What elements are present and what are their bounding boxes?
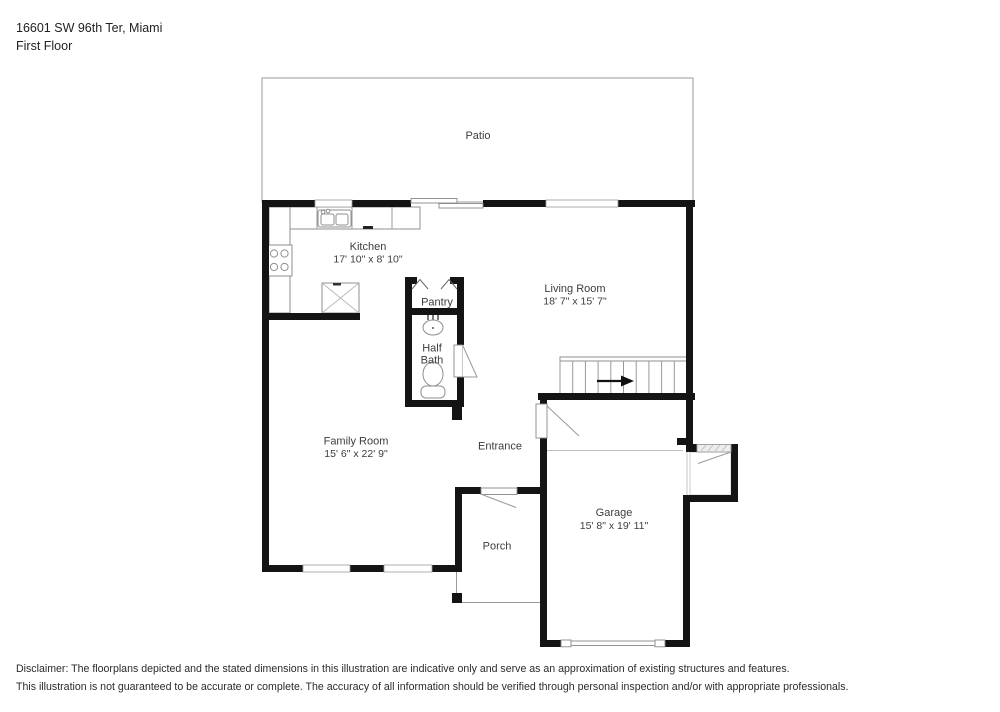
garage-door — [561, 640, 665, 647]
window — [384, 565, 432, 572]
disclaimer-line2: This illustration is not guaranteed to b… — [16, 681, 848, 693]
stove-icon — [267, 245, 292, 276]
front-door-swing — [481, 488, 517, 508]
bathroom-sink-icon — [423, 314, 443, 335]
porch-label: Porch — [483, 541, 512, 553]
side-entry-outline — [690, 452, 731, 495]
window — [315, 200, 352, 207]
half-bath-label-line2: Bath — [421, 355, 444, 367]
garage-dims: 15' 8" x 19' 11" — [580, 520, 649, 532]
bathroom-door-swing — [454, 345, 477, 377]
window — [546, 200, 618, 207]
staircase — [560, 357, 688, 393]
family-room-dims: 15' 6" x 22' 9" — [324, 448, 388, 460]
family-room-label: Family Room — [324, 436, 389, 448]
pantry-door-chevrons — [412, 280, 457, 290]
kitchen-label: Kitchen — [350, 241, 387, 253]
kitchen-sink-icon — [318, 209, 351, 227]
half-bath-label-line1: Half — [422, 343, 443, 355]
living-room-dims: 18' 7" x 15' 7" — [543, 296, 607, 308]
living-room-label: Living Room — [544, 283, 605, 295]
garage-label: Garage — [596, 507, 633, 519]
kitchen-island-icon — [322, 283, 359, 313]
kitchen-dims: 17' 10" x 8' 10" — [333, 254, 403, 266]
entrance-label: Entrance — [478, 441, 522, 453]
sliding-door — [411, 199, 483, 209]
disclaimer-line1: Disclaimer: The floorplans depicted and … — [16, 663, 790, 675]
interior-walls — [262, 277, 738, 647]
dishwasher-icon — [363, 226, 373, 229]
window — [303, 565, 350, 572]
address-title: 16601 SW 96th Ter, Miami — [16, 19, 162, 37]
garage-entry-door-swing — [536, 404, 579, 438]
floor-title: First Floor — [16, 37, 72, 55]
pantry-label: Pantry — [421, 297, 453, 309]
floor-plan-canvas: Patio Kitchen 17' 10" x 8' 10" Pantry Ha… — [0, 0, 1000, 707]
patio-label: Patio — [465, 130, 490, 142]
toilet-icon — [421, 362, 445, 398]
stairs-direction-arrow-icon — [597, 376, 634, 387]
